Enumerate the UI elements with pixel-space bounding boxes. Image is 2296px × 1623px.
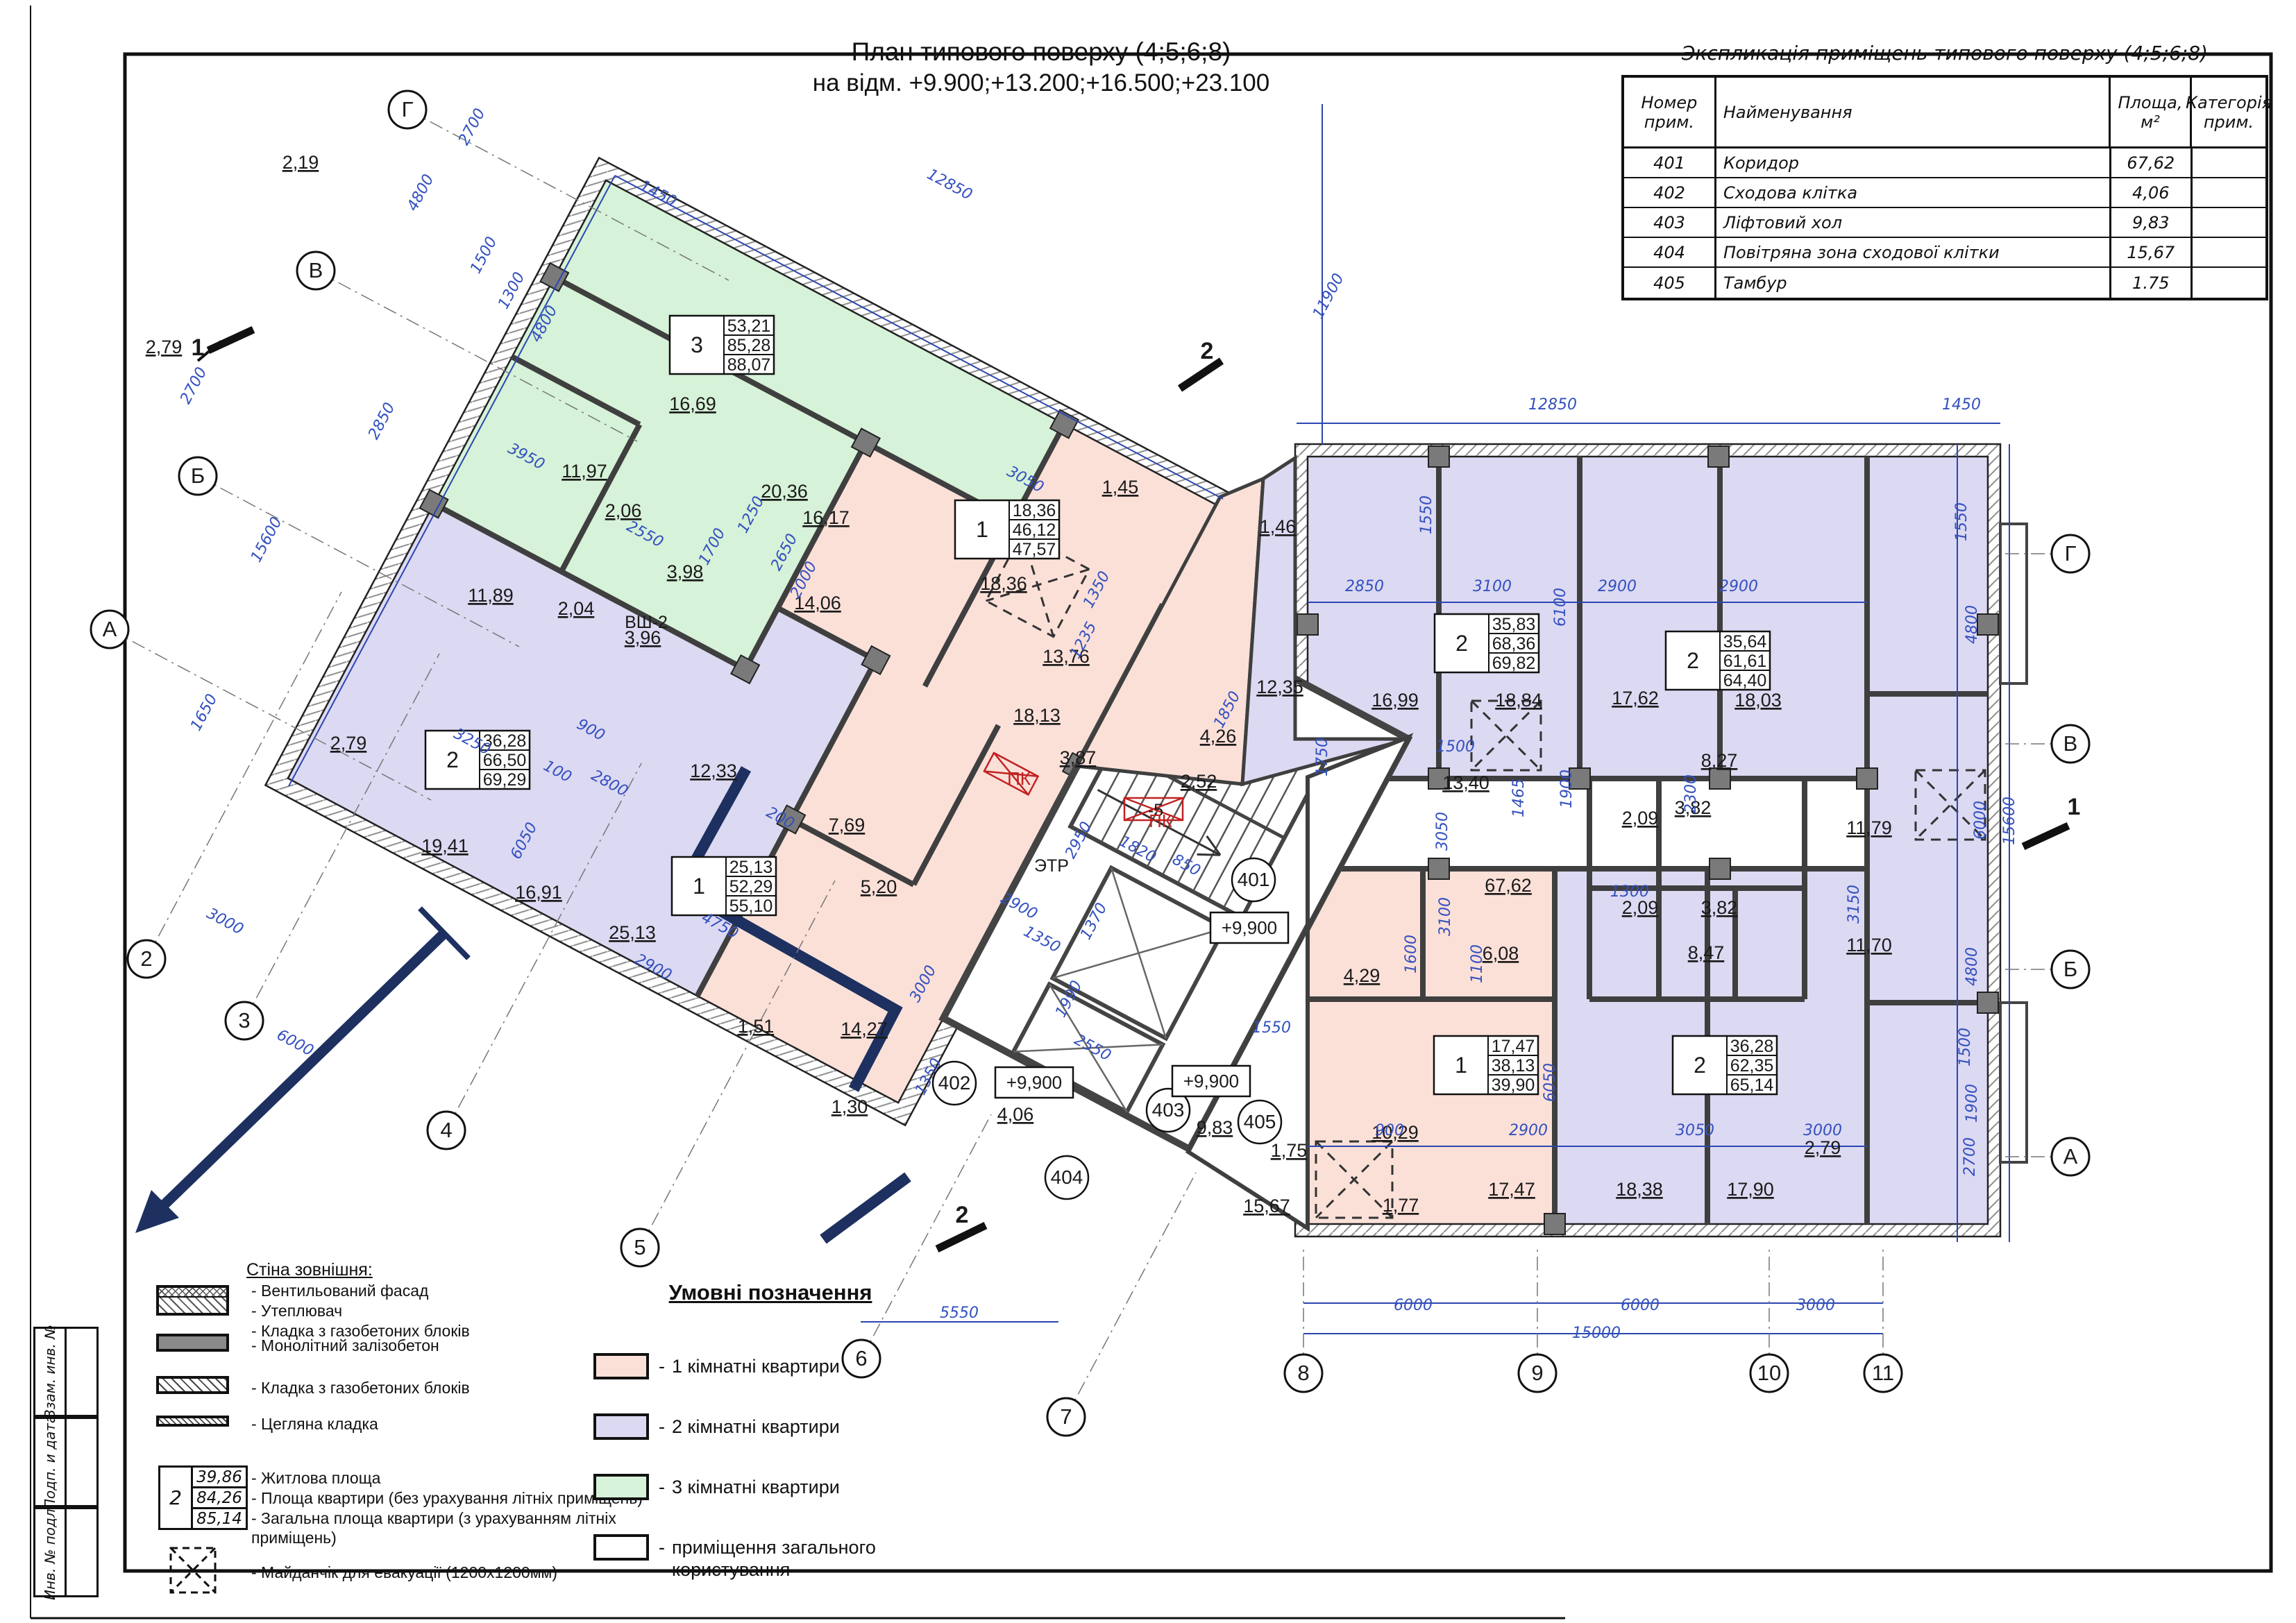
grid-bubble-label: 7: [1060, 1404, 1072, 1429]
right-wing: [1295, 444, 2027, 1237]
grid-bubble-label: А: [103, 617, 117, 641]
room-area-label: 17,47: [1488, 1179, 1535, 1200]
grid-bubble-label: А: [2063, 1144, 2078, 1169]
room-area-label: 18,38: [1616, 1179, 1663, 1200]
room-number: 404: [1624, 238, 1716, 268]
room-area-label: 5,20: [861, 876, 897, 897]
legend-item-common: - приміщення загального користування: [593, 1534, 901, 1581]
dimension-label: 2850: [365, 400, 398, 442]
grid-bubble-label: В: [2063, 731, 2078, 756]
dimension-label: 1300: [1610, 883, 1649, 901]
grid-bubble-label: 2: [140, 946, 152, 971]
stamp-box-vzam: Взам. инв. №: [33, 1327, 67, 1417]
room-area-label: 2,79: [146, 337, 183, 357]
sample-flat-area: 84,26: [193, 1488, 246, 1509]
dimension-label: 2850: [1345, 578, 1384, 595]
dimension-label: 12850: [1528, 396, 1577, 414]
room-category: [2193, 178, 2265, 208]
room-name: Тамбур: [1716, 268, 2111, 298]
elevation-mark-label: +9,900: [1222, 917, 1277, 938]
apartment-rooms-count: 2: [1455, 631, 1468, 656]
room-area-label: 11,70: [1846, 935, 1892, 955]
living-area-value: 35,64: [1723, 632, 1767, 652]
room-area-label: 3,98: [667, 561, 704, 582]
dimension-label: 2700: [455, 105, 489, 148]
dimension-label: 3050: [1675, 1122, 1714, 1139]
total-area-value: 65,14: [1730, 1076, 1774, 1095]
three-room-swatch: [593, 1474, 649, 1500]
dimension-label: 4800: [1964, 605, 1981, 644]
title-line2: на відм. +9.900;+13.200;+16.500;+23.100: [659, 68, 1423, 99]
drawing-sheet: ГВБА234567891011ГВБА353,2185,2888,07118,…: [0, 0, 2296, 1623]
grid-bubble-label: Г: [2065, 541, 2077, 566]
dimension-label: 6000: [273, 1026, 316, 1060]
room-area-label: 4,26: [1200, 726, 1237, 747]
room-area-label: 67,62: [1485, 875, 1532, 896]
dimension-label: 1600: [1403, 935, 1420, 974]
room-area-label: 12,35: [1256, 677, 1303, 697]
room-area-label: 2,09: [1622, 808, 1659, 829]
room-area-label: 11,97: [562, 461, 607, 482]
apartment-rooms-count: 1: [693, 874, 705, 899]
explication-row: 401 Коридор 67,62: [1624, 148, 2265, 178]
room-area: 1.75: [2111, 268, 2193, 298]
explication-title: Экспликація приміщень типового поверху (…: [1621, 42, 2268, 65]
room-category: [2193, 238, 2265, 268]
dimension-label: 1900: [1558, 770, 1576, 808]
room-area-label: 18,36: [980, 573, 1027, 594]
legend-item-2room: - 2 кімнатні квартири: [593, 1413, 840, 1440]
dimension-label: 6000: [1621, 1297, 1660, 1314]
brick-swatch: [156, 1416, 229, 1427]
legend-title: Умовні позначення: [625, 1280, 916, 1305]
flat-area-value: 68,36: [1492, 634, 1536, 654]
room-area-label: 11,79: [1846, 817, 1892, 838]
room-area-label: 8,47: [1688, 942, 1725, 963]
fire-cabinet-label: ПК: [1007, 768, 1031, 789]
room-area-label: 2,79: [330, 733, 367, 754]
room-category: [2193, 268, 2265, 298]
room-number-label: 405: [1244, 1111, 1276, 1132]
dimension-label: 4800: [1964, 947, 1981, 986]
room-area-label: 4,29: [1344, 965, 1381, 986]
misc-label: ЭТР: [1034, 856, 1069, 876]
apartment-rooms-count: 2: [1687, 648, 1699, 673]
explication-row: 404 Повітряна зона сходової клітки 15,67: [1624, 238, 2265, 268]
gasblock-label: - Кладка з газобетоних блоків: [251, 1378, 470, 1398]
fire-cabinet-label: ПК: [1149, 810, 1172, 831]
flat-area-value: 85,28: [727, 336, 771, 355]
room-area-label: 1,77: [1383, 1195, 1419, 1216]
dimension-label: 900: [1375, 1122, 1404, 1139]
apartment-rooms-count: 2: [1694, 1053, 1706, 1078]
two-room-swatch: [593, 1413, 649, 1440]
dimension-label: 6100: [1552, 588, 1569, 627]
dimension-label: 15600: [248, 514, 286, 566]
wall-legend-header: Стіна зовнішня:: [246, 1260, 373, 1280]
legend-label: 2 кімнатні квартири: [672, 1413, 840, 1438]
dimension-label: 1550: [1953, 502, 1970, 541]
dimension-label: 3000: [1803, 1122, 1842, 1139]
grid-bubble-label: 6: [855, 1346, 867, 1370]
col-header-category: Категорія прим.: [2192, 78, 2265, 148]
room-area: 15,67: [2111, 238, 2193, 268]
room-number: 403: [1624, 208, 1716, 238]
total-area-value: 39,90: [1492, 1076, 1535, 1095]
room-category: [2193, 208, 2265, 238]
grid-bubble-label: 9: [1531, 1361, 1543, 1385]
total-area-value: 69,82: [1492, 654, 1536, 673]
dimension-label: 1500: [1436, 738, 1475, 756]
grid-bubble-label: 10: [1757, 1361, 1781, 1385]
dimension-label: 1100: [1469, 944, 1486, 983]
stamp-box-podp: Подп. и дата: [33, 1417, 67, 1507]
room-area-label: 19,41: [421, 835, 469, 856]
monolith-label: - Монолітний залізобетон: [251, 1336, 439, 1356]
legend-label: приміщення загального користування: [672, 1534, 901, 1581]
area-sample-box: 2 39,86 84,26 85,14: [158, 1465, 248, 1530]
total-area-value: 47,57: [1013, 540, 1056, 559]
dimension-label: 3100: [1473, 578, 1512, 595]
drawing-title: План типового поверху (4;5;6;8) на відм.…: [659, 36, 1423, 99]
apartment-rooms-count: 1: [1455, 1053, 1467, 1078]
room-area-label: 16,91: [515, 882, 562, 903]
grid-bubble-label: 11: [1872, 1361, 1894, 1385]
room-area-label: 6,08: [1483, 943, 1519, 964]
room-number-label: 402: [938, 1072, 971, 1094]
room-area-label: 15,67: [1243, 1196, 1290, 1216]
room-area-label: 1,75: [1271, 1140, 1308, 1161]
misc-label: ВШ-2: [625, 613, 668, 632]
elevation-mark-label: +9,900: [1183, 1071, 1239, 1091]
room-area-label: 20,36: [761, 481, 808, 502]
dimension-label: 1550: [1418, 495, 1435, 534]
explication-header-row: Номер прим. Найменування Площа, м² Катег…: [1624, 78, 2265, 148]
flat-area-value: 62,35: [1730, 1056, 1774, 1076]
grid-bubble-label: 4: [440, 1118, 452, 1142]
room-number-label: 404: [1051, 1166, 1083, 1188]
common-area-swatch: [593, 1534, 649, 1561]
sample-total-area: 85,14: [193, 1509, 246, 1528]
flat-area-value: 61,61: [1723, 652, 1767, 671]
dimension-label: 2300: [1682, 774, 1700, 813]
dimension-label: 2700: [1961, 1137, 1979, 1176]
room-name: Коридор: [1716, 148, 2111, 178]
room-number: 405: [1624, 268, 1716, 298]
dimension-label: 1450: [1942, 396, 1981, 414]
legend-item-3room: - 3 кімнатні квартири: [593, 1474, 840, 1500]
dimension-label: 3000: [1796, 1297, 1835, 1314]
facade-wall-swatch: [156, 1285, 229, 1316]
room-area-label: 7,69: [829, 815, 866, 835]
dimension-label: 1750: [1314, 738, 1331, 776]
room-area-label: 16,17: [802, 507, 850, 528]
room-area-label: 2,19: [282, 152, 319, 173]
legend-label: 1 кімнатні квартири: [672, 1353, 840, 1377]
room-number: 401: [1624, 148, 1716, 178]
col-header-name: Найменування: [1716, 78, 2111, 148]
room-area-label: 17,90: [1727, 1179, 1774, 1200]
dimension-label: 2900: [1719, 578, 1758, 595]
dimension-label: 3050: [1434, 812, 1451, 851]
facade-wall-label: - Вентильований фасад - Утеплювач - Клад…: [251, 1281, 470, 1341]
room-area-label: 8,27: [1701, 750, 1738, 771]
dimension-label: 4800: [404, 171, 437, 214]
room-area: 67,62: [2111, 148, 2193, 178]
section-mark-label: 1: [192, 334, 205, 361]
dimension-label: 2700: [177, 364, 210, 407]
living-area-value: 36,28: [1730, 1037, 1774, 1056]
evacuation-label: - Майданчік для евакуації (1200х1200мм): [251, 1563, 557, 1583]
dimension-label: 1465: [1510, 779, 1528, 817]
sample-apartment-number: 2: [160, 1468, 191, 1528]
room-area-label: 1,45: [1102, 477, 1139, 498]
room-name: Повітряна зона сходової клітки: [1716, 238, 2111, 268]
elevation-mark-label: +9,900: [1006, 1072, 1062, 1093]
room-name: Ліфтовий хол: [1716, 208, 2111, 238]
dimension-label: 12850: [924, 166, 975, 204]
room-area-label: 9,83: [1197, 1117, 1233, 1138]
axis-leader-line: [1066, 1173, 1196, 1417]
dimension-label: 6000: [1972, 801, 1989, 840]
living-area-value: 17,47: [1492, 1037, 1535, 1056]
apartment-rooms-count: 2: [446, 747, 459, 772]
room-area: 9,83: [2111, 208, 2193, 238]
gasblock-swatch: [156, 1376, 229, 1394]
grid-bubble-label: В: [309, 258, 323, 282]
dimension-label: 3000: [203, 905, 246, 938]
dimension-label: 6050: [1542, 1063, 1559, 1102]
flat-area-value: 46,12: [1013, 520, 1056, 540]
evacuation-pad-swatch: [169, 1546, 217, 1595]
col-header-area: Площа, м²: [2111, 78, 2192, 148]
dimension-label: 6000: [1394, 1297, 1433, 1314]
room-area-label: 3,87: [1060, 747, 1097, 768]
room-area-label: 1,46: [1260, 516, 1297, 537]
section-mark-label: 1: [2068, 794, 2081, 820]
total-area-value: 55,10: [729, 897, 773, 916]
living-area-value: 53,21: [727, 316, 771, 336]
explication-row: 403 Ліфтовий хол 9,83: [1624, 208, 2265, 238]
total-area-value: 69,29: [483, 770, 527, 790]
living-area-value: 25,13: [729, 858, 773, 877]
room-area-label: 1,51: [738, 1016, 775, 1037]
room-area-label: 13,40: [1442, 772, 1489, 793]
explication-row: 405 Тамбур 1.75: [1624, 268, 2265, 298]
grid-bubble-label: 5: [634, 1235, 645, 1259]
dimension-label: 15000: [1572, 1325, 1621, 1342]
dimension-label: 2900: [1509, 1122, 1548, 1139]
room-name: Сходова клітка: [1716, 178, 2111, 208]
room-number-label: 403: [1152, 1099, 1185, 1121]
total-area-value: 64,40: [1723, 671, 1767, 690]
apartment-rooms-count: 1: [976, 517, 988, 542]
room-area-label: 2,52: [1181, 771, 1217, 792]
room-area: 4,06: [2111, 178, 2193, 208]
total-area-value: 88,07: [727, 355, 771, 375]
legend-item-1room: - 1 кімнатні квартири: [593, 1353, 840, 1379]
sample-living-area: 39,86: [193, 1468, 246, 1488]
legend-label: 3 кімнатні квартири: [672, 1474, 840, 1498]
living-area-value: 35,83: [1492, 615, 1536, 634]
room-number-label: 401: [1238, 869, 1270, 890]
room-category: [2193, 148, 2265, 178]
dimension-label: 11900: [1310, 271, 1348, 322]
grid-bubble-label: Б: [2063, 957, 2077, 981]
room-area-label: 14,27: [841, 1019, 888, 1039]
grid-bubble-label: 3: [238, 1008, 250, 1033]
col-header-number: Номер прим.: [1624, 78, 1716, 148]
room-area-label: 2,79: [1805, 1137, 1841, 1158]
grid-bubble-label: 8: [1297, 1361, 1309, 1385]
room-area-label: 11,89: [468, 585, 514, 606]
dimension-label: 1650: [187, 691, 221, 733]
room-area-label: 4,06: [997, 1104, 1034, 1125]
room-area-label: 2,06: [605, 500, 642, 521]
flat-area-value: 38,13: [1492, 1056, 1535, 1076]
room-area-label: 16,69: [669, 393, 716, 414]
title-line1: План типового поверху (4;5;6;8): [659, 36, 1423, 68]
room-area-label: 18,13: [1013, 705, 1061, 726]
stamp-box-inv: Инв. № подл.: [33, 1507, 67, 1597]
dimension-label: 15600: [2001, 797, 2018, 845]
room-area-label: 2,04: [558, 598, 595, 619]
dimension-label: 3100: [1437, 897, 1454, 936]
living-area-value: 18,36: [1013, 501, 1056, 520]
dimension-label: 1900: [1964, 1084, 1981, 1123]
dimension-label: 5550: [940, 1305, 979, 1322]
room-area-label: 18,03: [1734, 690, 1782, 711]
room-number: 402: [1624, 178, 1716, 208]
room-area-label: 12,33: [690, 760, 737, 781]
explication-row: 402 Сходова клітка 4,06: [1624, 178, 2265, 208]
grid-bubble-label: Б: [191, 464, 205, 488]
dimension-label: 1500: [467, 234, 500, 276]
brick-label: - Цегляна кладка: [251, 1414, 378, 1434]
flat-area-value: 66,50: [483, 751, 527, 770]
section-mark-label: 2: [956, 1202, 969, 1228]
explication-table: Номер прим. Найменування Площа, м² Катег…: [1621, 75, 2268, 300]
monolith-swatch: [156, 1334, 229, 1352]
dimension-label: 3150: [1846, 885, 1863, 924]
one-room-swatch: [593, 1353, 649, 1379]
flat-area-value: 52,29: [729, 877, 773, 897]
room-area-label: 16,99: [1371, 690, 1419, 711]
room-area-label: 3,82: [1701, 897, 1738, 918]
dimension-label: 1500: [1957, 1028, 1974, 1067]
apartment-rooms-count: 3: [691, 332, 703, 357]
room-area-label: 18,84: [1495, 690, 1542, 711]
dimension-label: 1550: [1252, 1019, 1291, 1037]
room-area-label: 25,13: [609, 922, 656, 943]
room-area-label: 17,62: [1612, 688, 1659, 708]
dimension-label: 2900: [1598, 578, 1637, 595]
grid-bubble-label: Г: [402, 97, 414, 121]
room-area-label: 1,30: [832, 1096, 868, 1117]
section-mark-label: 2: [1201, 338, 1214, 364]
